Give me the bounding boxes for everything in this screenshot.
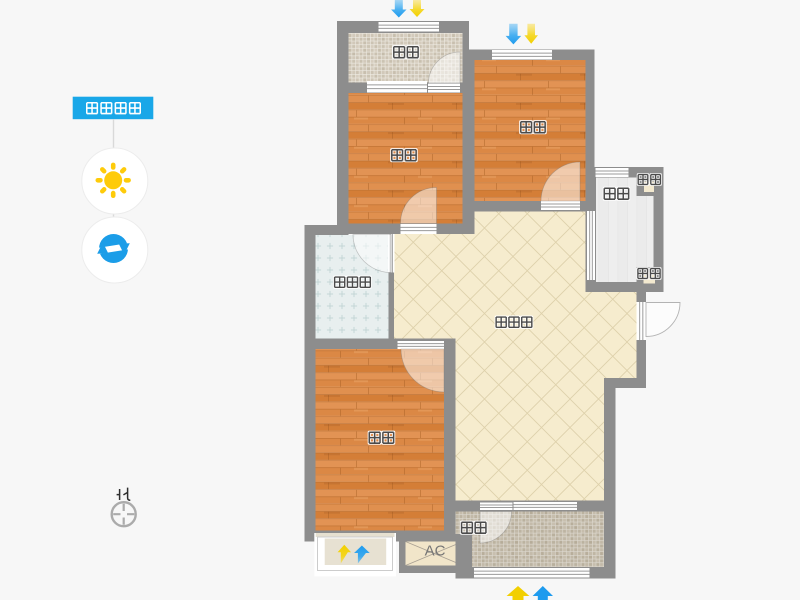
svg-text:AC: AC [425, 543, 446, 560]
